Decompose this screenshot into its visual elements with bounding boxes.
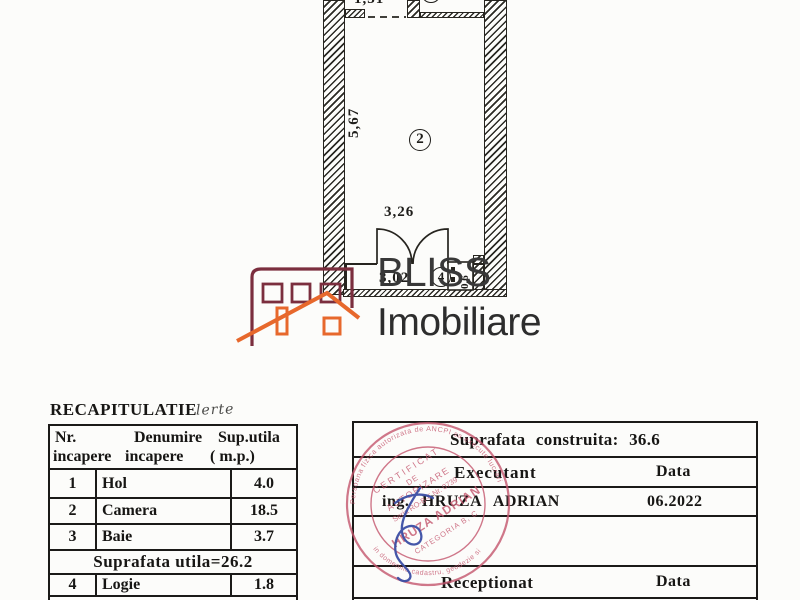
executant-data-label: Data [656, 463, 691, 481]
recap-summary-text: Suprafata utila=26.2 [93, 552, 252, 572]
recap-header-mp: ( m.p.) [210, 448, 255, 466]
recap-row-camera-area: 18.5 [232, 499, 296, 523]
logo-roof [237, 293, 359, 341]
dim-hol-width: 1,31 [354, 0, 384, 8]
dim-room-height: 5,67 [346, 86, 363, 138]
recap-row-hol-name: Hol [97, 470, 232, 497]
plan-wall-divider [407, 0, 420, 18]
info-row-empty [354, 517, 756, 567]
recap-row-hol: 1 Hol 4.0 [50, 470, 296, 499]
recap-row-logie-name: Logie [97, 575, 232, 595]
recap-row-camera: 2 Camera 18.5 [50, 499, 296, 525]
logo-attic-window [324, 318, 340, 334]
logo-window-1 [263, 284, 282, 302]
recap-title-note: lerte [196, 401, 235, 418]
info-row-executant: Executant Data [354, 458, 756, 488]
recap-row-camera-nr: 2 [50, 499, 97, 523]
logo-subtitle: Imobiliare [377, 301, 541, 345]
info-row-built-area: Suprafata construita: 36.6 [354, 423, 756, 458]
recap-row-baie: 3 Baie 3.7 [50, 525, 296, 551]
built-area-text: Suprafata construita: 36.6 [450, 430, 660, 450]
info-row-executant-name: ing. HRUZA ADRIAN 06.2022 [354, 488, 756, 517]
logo-chimney [277, 308, 287, 334]
recap-row-logie-area: 1.8 [232, 575, 296, 595]
plan-wall-left [323, 0, 345, 295]
plan-wall-stub-top [345, 9, 365, 18]
info-table: Suprafata construita: 36.6 Executant Dat… [352, 421, 758, 600]
recap-row-hol-area: 4.0 [232, 470, 296, 497]
recap-table: Nr. Denumire Sup.utila incapere incapere… [48, 424, 298, 600]
recap-summary-row: Suprafata utila=26.2 [50, 551, 296, 575]
recap-header: Nr. Denumire Sup.utila incapere incapere… [50, 426, 296, 470]
receptionat-data-label: Data [656, 573, 691, 591]
logo-window-2 [292, 284, 310, 302]
executant-label: Executant [454, 463, 537, 483]
recap-header-sup: Sup.utila [218, 429, 280, 447]
recap-row-baie-area: 3.7 [232, 525, 296, 549]
recap-row-baie-nr: 3 [50, 525, 97, 549]
recap-header-incapere1: incapere [53, 448, 111, 466]
room-label-bath: 3 [421, 0, 441, 3]
executant-date: 06.2022 [647, 493, 703, 511]
scanned-document-page: 1,31 3 5,67 2 3,26 3,02 4 0,6 BLISS Imob… [0, 0, 800, 600]
receptionat-label: Receptionat [441, 573, 533, 593]
recap-header-denumire: Denumire [134, 429, 202, 447]
recap-header-incapere2: incapere [125, 448, 183, 466]
recap-row-logie: 4 Logie 1.8 [50, 575, 296, 597]
recap-row-logie-nr: 4 [50, 575, 97, 595]
plan-wall-bath-bottom [420, 12, 484, 18]
recap-row-hol-nr: 1 [50, 470, 97, 497]
executant-name: ing. HRUZA ADRIAN [382, 493, 560, 511]
room-label-camera: 2 [409, 129, 431, 151]
recap-title: RECAPITULATIE [50, 400, 197, 420]
recap-row-baie-name: Baie [97, 525, 232, 549]
logo-title: BLISS [377, 249, 491, 296]
recap-header-nr: Nr. [55, 429, 76, 447]
dim-room-width: 3,26 [384, 204, 414, 221]
info-row-receptionat: Receptionat Data [354, 567, 756, 599]
recap-row-camera-name: Camera [97, 499, 232, 523]
